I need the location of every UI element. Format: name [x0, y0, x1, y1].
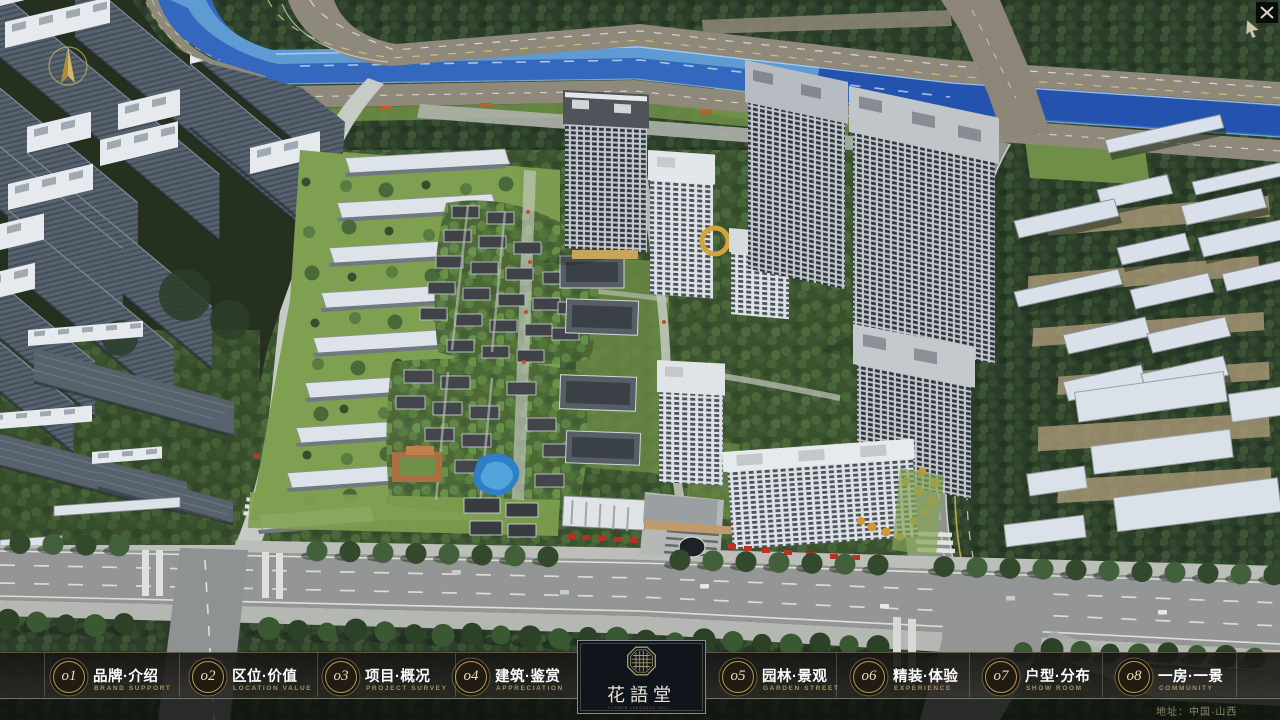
svg-text:FLOWER LANGUAGE HALL: FLOWER LANGUAGE HALL — [608, 706, 670, 710]
svg-text:花語堂: 花語堂 — [607, 685, 676, 705]
